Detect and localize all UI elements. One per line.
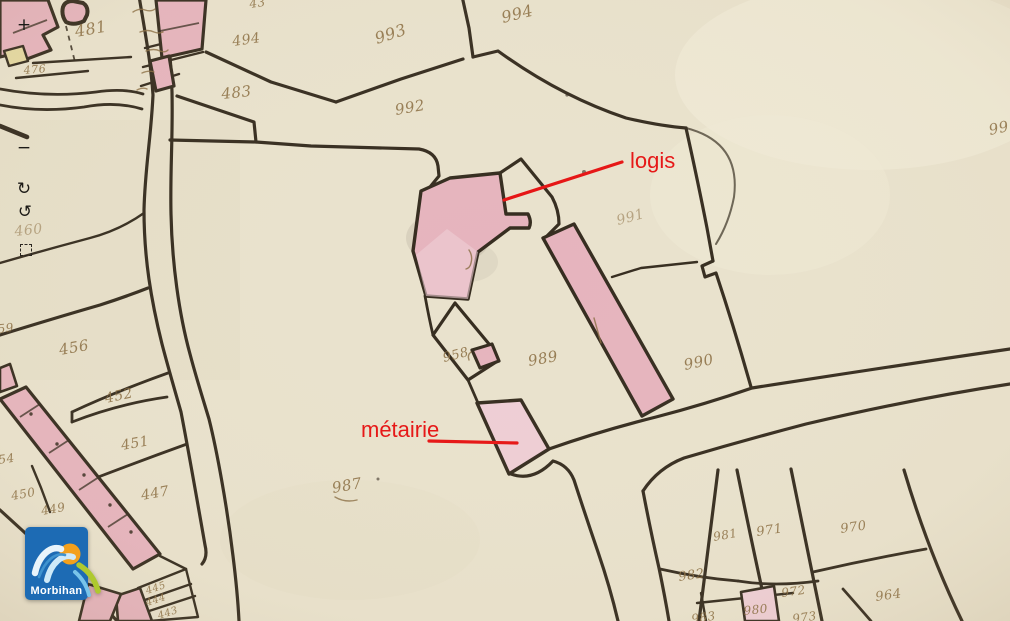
building-north	[156, 0, 206, 58]
select-area-icon	[20, 244, 32, 256]
morbihan-logo: Morbihan	[23, 525, 115, 609]
metairie-annotation: métairie	[361, 417, 439, 442]
rotate-ccw-icon: ↺	[18, 204, 32, 221]
cadastral-map-image[interactable]: 4814764349448399399499299199460459456452…	[0, 0, 1010, 621]
building-small-north	[150, 56, 174, 91]
zoom-in-button[interactable]: +	[15, 16, 33, 34]
rotate-cw-icon: ↻	[17, 181, 31, 198]
archive-map-viewer: 4814764349448399399499299199460459456452…	[0, 0, 1010, 621]
parcel-number: 980	[743, 602, 769, 618]
rotate-cw-button[interactable]: ↻	[15, 180, 33, 198]
zoom-in-icon: +	[17, 17, 31, 34]
parcel-number: 483	[220, 82, 253, 103]
parcel-number: 459	[0, 321, 15, 338]
logis-annotation: logis	[630, 148, 675, 173]
metairie-annotation-line	[429, 441, 517, 443]
parcel-number: 460	[13, 221, 44, 240]
zoom-out-icon: −	[17, 140, 31, 157]
parcel-number: 476	[22, 62, 47, 77]
zoom-out-button[interactable]: −	[15, 139, 33, 157]
morbihan-logo-text: Morbihan	[31, 585, 83, 597]
rotate-ccw-button[interactable]: ↺	[16, 203, 34, 221]
select-area-button[interactable]	[17, 241, 35, 259]
